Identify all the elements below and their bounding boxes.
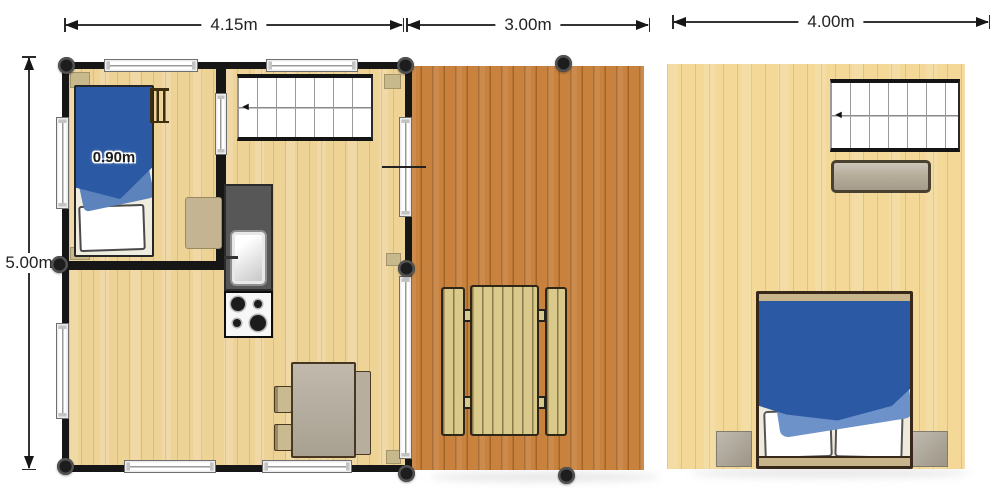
door-section-mark: [382, 166, 426, 168]
kitchen-stove: [224, 291, 273, 338]
bed-footboard: [759, 456, 910, 466]
stove-burner: [233, 319, 241, 327]
stair-direction-arrow-icon: ◄: [240, 102, 251, 113]
structural-post: [398, 260, 415, 277]
stove-burner: [231, 297, 245, 311]
structural-post: [397, 57, 414, 74]
window-left-living: [56, 323, 69, 419]
arrow-left-icon: [65, 20, 78, 30]
dimension-cabin-depth: 5.00m: [21, 56, 37, 470]
dimension-label: 4.15m: [201, 15, 266, 35]
picnic-bench-left: [441, 287, 465, 436]
single-bed: 0.90m: [74, 85, 154, 257]
dining-chair: [274, 386, 292, 413]
loft-staircase: ◄: [830, 79, 960, 152]
arrow-right-icon: [976, 17, 989, 27]
picnic-bench-right: [545, 287, 567, 436]
arrow-left-icon: [673, 17, 686, 27]
floor-plan-canvas: 4.15m 3.00m 4.00m 5.00m ◄: [0, 0, 1000, 493]
stove-burner: [254, 300, 262, 308]
dining-table: [291, 362, 356, 458]
structural-post: [57, 458, 74, 475]
bedroom-wall-horizontal: [62, 261, 226, 270]
arrow-right-icon: [636, 20, 649, 30]
cabin-staircase: ◄: [237, 74, 373, 141]
nightstand-right: [912, 431, 948, 467]
window-top-stair-room: [266, 59, 358, 72]
ground-shadow: [430, 472, 660, 482]
bed-blanket: [759, 301, 910, 423]
double-bed: [756, 291, 913, 469]
structural-post: [51, 256, 68, 273]
picnic-table: [470, 285, 539, 436]
dimension-deck-width: 3.00m: [406, 17, 650, 33]
kitchen-faucet: [224, 256, 238, 259]
stove-burner: [250, 315, 266, 331]
arrow-down-icon: [24, 456, 34, 469]
dimension-label: 3.00m: [495, 15, 560, 35]
arrow-left-icon: [407, 20, 420, 30]
bunk-ladder-icon: [150, 88, 169, 123]
bed-width-label: 0.90m: [76, 149, 152, 166]
corner-pad: [384, 74, 401, 89]
nightstand-left: [716, 431, 752, 467]
dimension-cabin-width: 4.15m: [64, 17, 404, 33]
window-bottom-right: [262, 460, 352, 473]
glass-door-lower: [399, 276, 412, 459]
dining-chair: [274, 424, 292, 451]
window-top-bedroom: [104, 59, 198, 72]
structural-post: [398, 465, 415, 482]
window-bottom-left: [124, 460, 216, 473]
window-left-bedroom: [56, 117, 69, 209]
bedroom-door: [215, 93, 227, 155]
structural-post: [558, 467, 575, 484]
dimension-label: 4.00m: [798, 12, 863, 32]
stair-direction-arrow-icon: ◄: [833, 110, 844, 121]
bedroom-cabinet: [185, 197, 222, 249]
ground-shadow: [690, 468, 970, 478]
arrow-up-icon: [24, 57, 34, 70]
structural-post: [58, 57, 75, 74]
arrow-right-icon: [390, 20, 403, 30]
dimension-loft-width: 4.00m: [672, 14, 990, 30]
loft-dresser: [831, 160, 931, 193]
structural-post: [555, 55, 572, 72]
